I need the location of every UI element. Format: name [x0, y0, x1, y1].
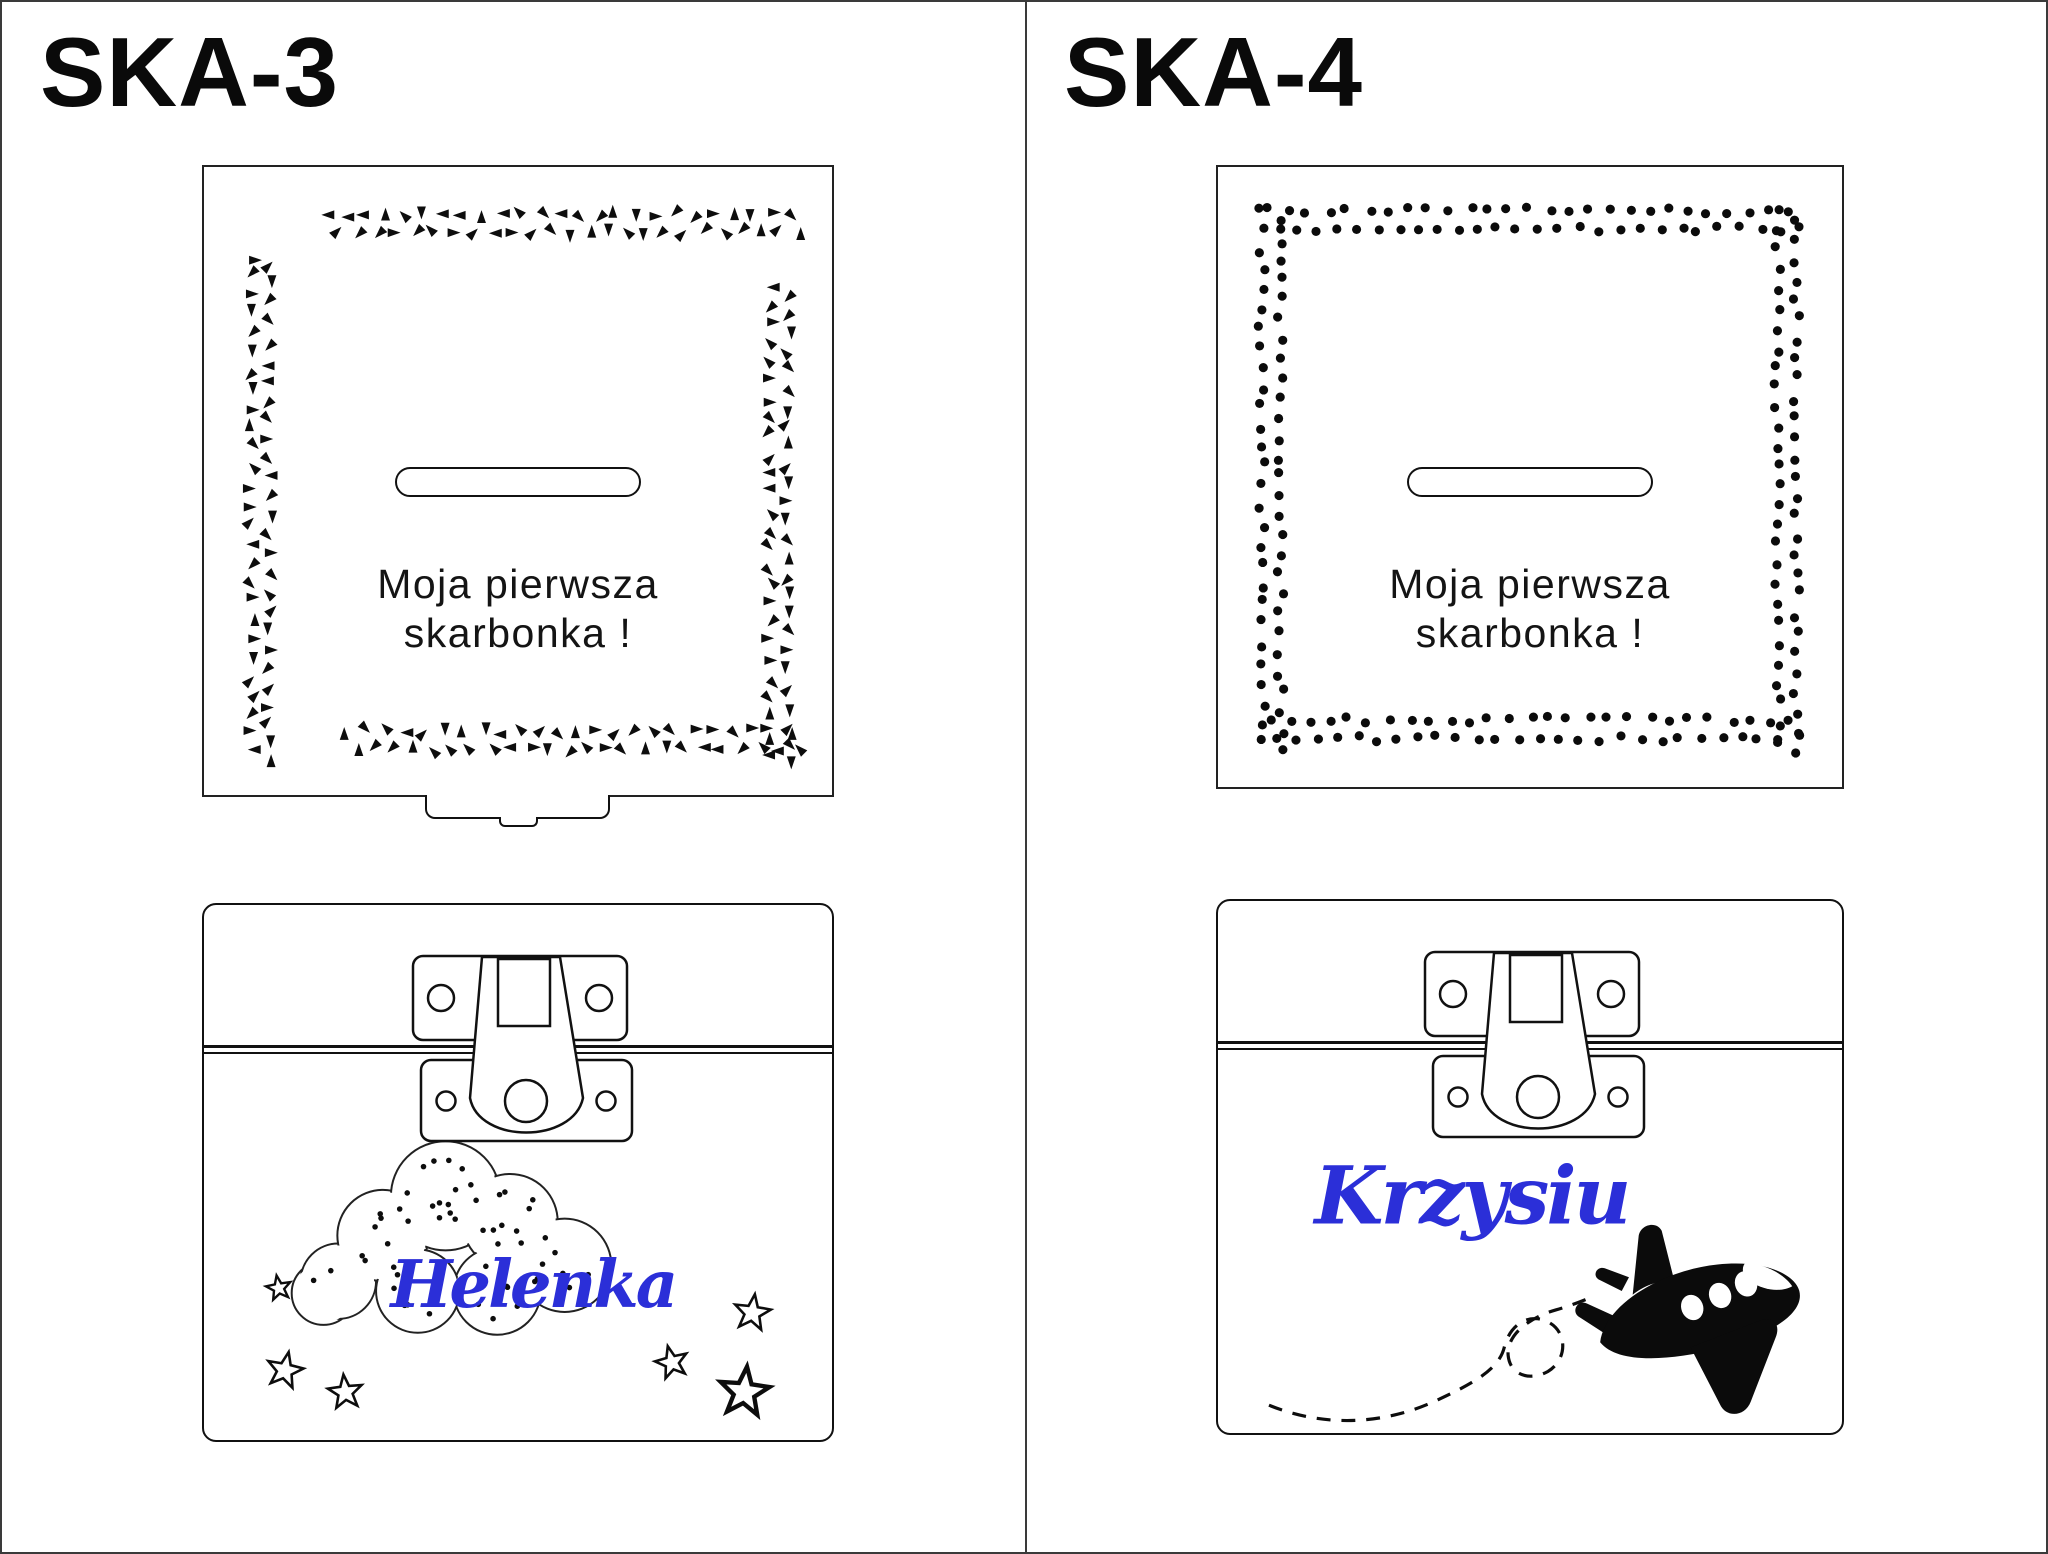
lid-caption-line2: skarbonka !	[1218, 609, 1842, 658]
panel-ska4: SKA-4 Moja pierwsza skarbonka !	[1026, 2, 2048, 1552]
star-icon	[652, 1342, 691, 1379]
star-icon	[264, 1348, 306, 1389]
hinge-tab	[425, 795, 610, 819]
page-title: SKA-4	[1064, 16, 1363, 129]
panel-ska3: SKA-3 Moja pierwsza skarbonka !	[2, 2, 1024, 1552]
lid-caption: Moja pierwsza skarbonka !	[1218, 560, 1842, 658]
front-view-box: Krzysiu	[1216, 899, 1844, 1435]
page-title: SKA-3	[40, 16, 339, 129]
latch-clasp-icon	[403, 948, 637, 1154]
lid-caption-line2: skarbonka !	[204, 609, 832, 658]
lid-top-view: Moja pierwsza skarbonka !	[202, 165, 834, 797]
hinge-tab-notch	[499, 817, 538, 827]
lid-caption: Moja pierwsza skarbonka !	[204, 560, 832, 658]
latch-clasp-icon	[1415, 944, 1649, 1150]
lid-caption-line1: Moja pierwsza	[1218, 560, 1842, 609]
coin-slot	[1407, 467, 1653, 497]
lid-caption-line1: Moja pierwsza	[204, 560, 832, 609]
child-name-text: Krzysiu	[1313, 1149, 1629, 1243]
coin-slot	[395, 467, 641, 497]
star-icon	[264, 1273, 292, 1300]
design-sheet: SKA-3 Moja pierwsza skarbonka !	[0, 0, 2048, 1554]
lid-top-view: Moja pierwsza skarbonka !	[1216, 165, 1844, 789]
child-name-text: Helenka	[389, 1246, 676, 1323]
star-icon	[327, 1373, 364, 1409]
front-view-box: Helenka	[202, 903, 834, 1442]
star-icon	[732, 1292, 772, 1331]
flight-trail	[1269, 1298, 1590, 1421]
star-icon	[718, 1364, 772, 1416]
